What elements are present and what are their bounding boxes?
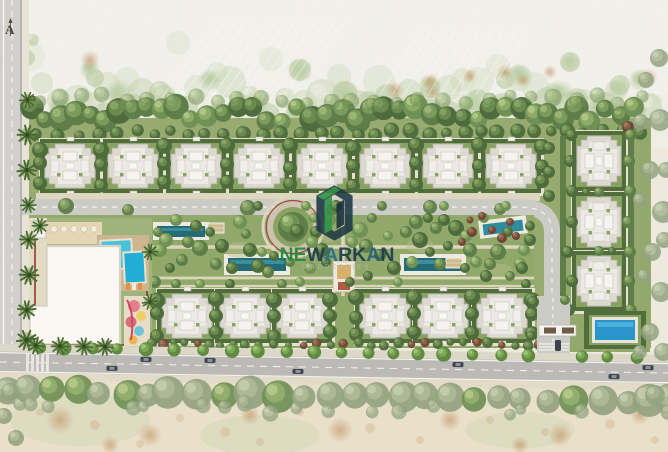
- svg-text:NEWARKAN: NEWARKAN: [280, 244, 395, 266]
- svg-text:PROPERTIES: PROPERTIES: [303, 264, 371, 271]
